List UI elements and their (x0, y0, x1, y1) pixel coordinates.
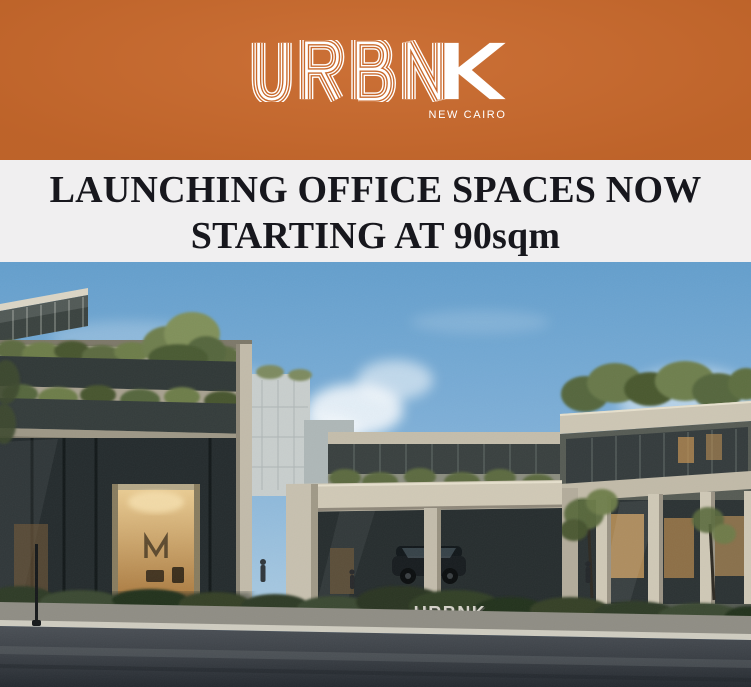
logo-letter-k-icon (445, 43, 505, 99)
headline-line2: STARTING AT 90sqm (0, 213, 751, 259)
logo-letter-r-icon (306, 43, 337, 99)
grain-overlay (0, 262, 751, 687)
hero-rendering: URBNK URBNK (0, 262, 751, 687)
headline-section: LAUNCHING OFFICE SPACES NOW STARTING AT … (0, 160, 751, 262)
brand-banner: NEW CAIRO (0, 0, 751, 160)
headline-line1: LAUNCHING OFFICE SPACES NOW (0, 167, 751, 213)
hero-image: URBNK URBNK (0, 262, 751, 687)
logo-letter-u-icon (258, 43, 284, 99)
logo-letter-b-icon (358, 43, 389, 99)
urbnk-logo: NEW CAIRO (243, 40, 509, 121)
flyer: NEW CAIRO LAUNCHING OFFICE SPACES NOW ST… (0, 0, 751, 687)
brand-tagline: NEW CAIRO (243, 109, 509, 121)
logo-letter-n-icon (408, 43, 438, 99)
urbnk-logo-icon (243, 40, 509, 102)
